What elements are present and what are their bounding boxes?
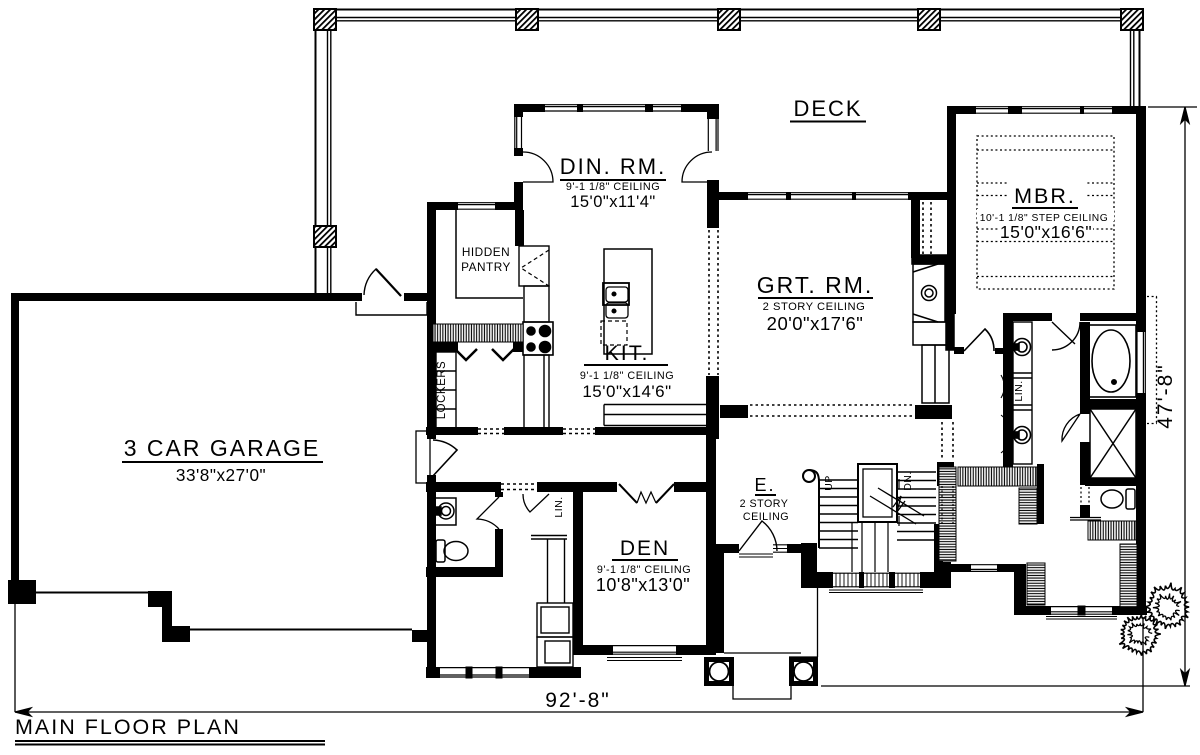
svg-text:15'0"x14'6": 15'0"x14'6" xyxy=(582,382,671,401)
svg-text:DIN. RM.: DIN. RM. xyxy=(560,154,666,179)
svg-text:3 CAR GARAGE: 3 CAR GARAGE xyxy=(124,435,321,461)
svg-text:9'-1 1/8" CEILING: 9'-1 1/8" CEILING xyxy=(580,370,674,382)
svg-text:UP: UP xyxy=(823,475,835,491)
svg-text:2 STORY: 2 STORY xyxy=(740,498,789,510)
svg-text:20'0"x17'6": 20'0"x17'6" xyxy=(767,313,864,334)
svg-text:LIN.: LIN. xyxy=(1013,380,1025,401)
svg-text:DECK: DECK xyxy=(793,96,862,121)
svg-text:LIN.: LIN. xyxy=(553,496,565,517)
svg-text:HIDDEN: HIDDEN xyxy=(462,245,510,259)
svg-text:33'8"x27'0": 33'8"x27'0" xyxy=(176,465,266,485)
svg-text:LOCKERS: LOCKERS xyxy=(436,361,448,419)
svg-text:10'8"x13'0": 10'8"x13'0" xyxy=(596,575,690,595)
svg-text:MAIN FLOOR PLAN: MAIN FLOOR PLAN xyxy=(15,715,241,739)
svg-text:DN.: DN. xyxy=(902,471,914,491)
svg-text:92'-8": 92'-8" xyxy=(545,689,611,712)
svg-text:CEILING: CEILING xyxy=(743,511,789,523)
svg-text:GRT. RM.: GRT. RM. xyxy=(757,272,874,298)
svg-text:PANTRY: PANTRY xyxy=(461,260,511,274)
svg-text:DEN: DEN xyxy=(620,537,670,560)
svg-text:E.: E. xyxy=(754,475,775,495)
svg-text:47'-8": 47'-8" xyxy=(1154,363,1177,429)
svg-text:9'-1 1/8" CEILING: 9'-1 1/8" CEILING xyxy=(566,181,660,193)
svg-text:2 STORY CEILING: 2 STORY CEILING xyxy=(763,301,866,313)
svg-text:15'0"x16'6": 15'0"x16'6" xyxy=(1000,222,1092,242)
svg-text:MBR.: MBR. xyxy=(1014,184,1076,208)
svg-text:15'0"x11'4": 15'0"x11'4" xyxy=(570,193,656,211)
svg-text:KIT.: KIT. xyxy=(604,341,649,365)
